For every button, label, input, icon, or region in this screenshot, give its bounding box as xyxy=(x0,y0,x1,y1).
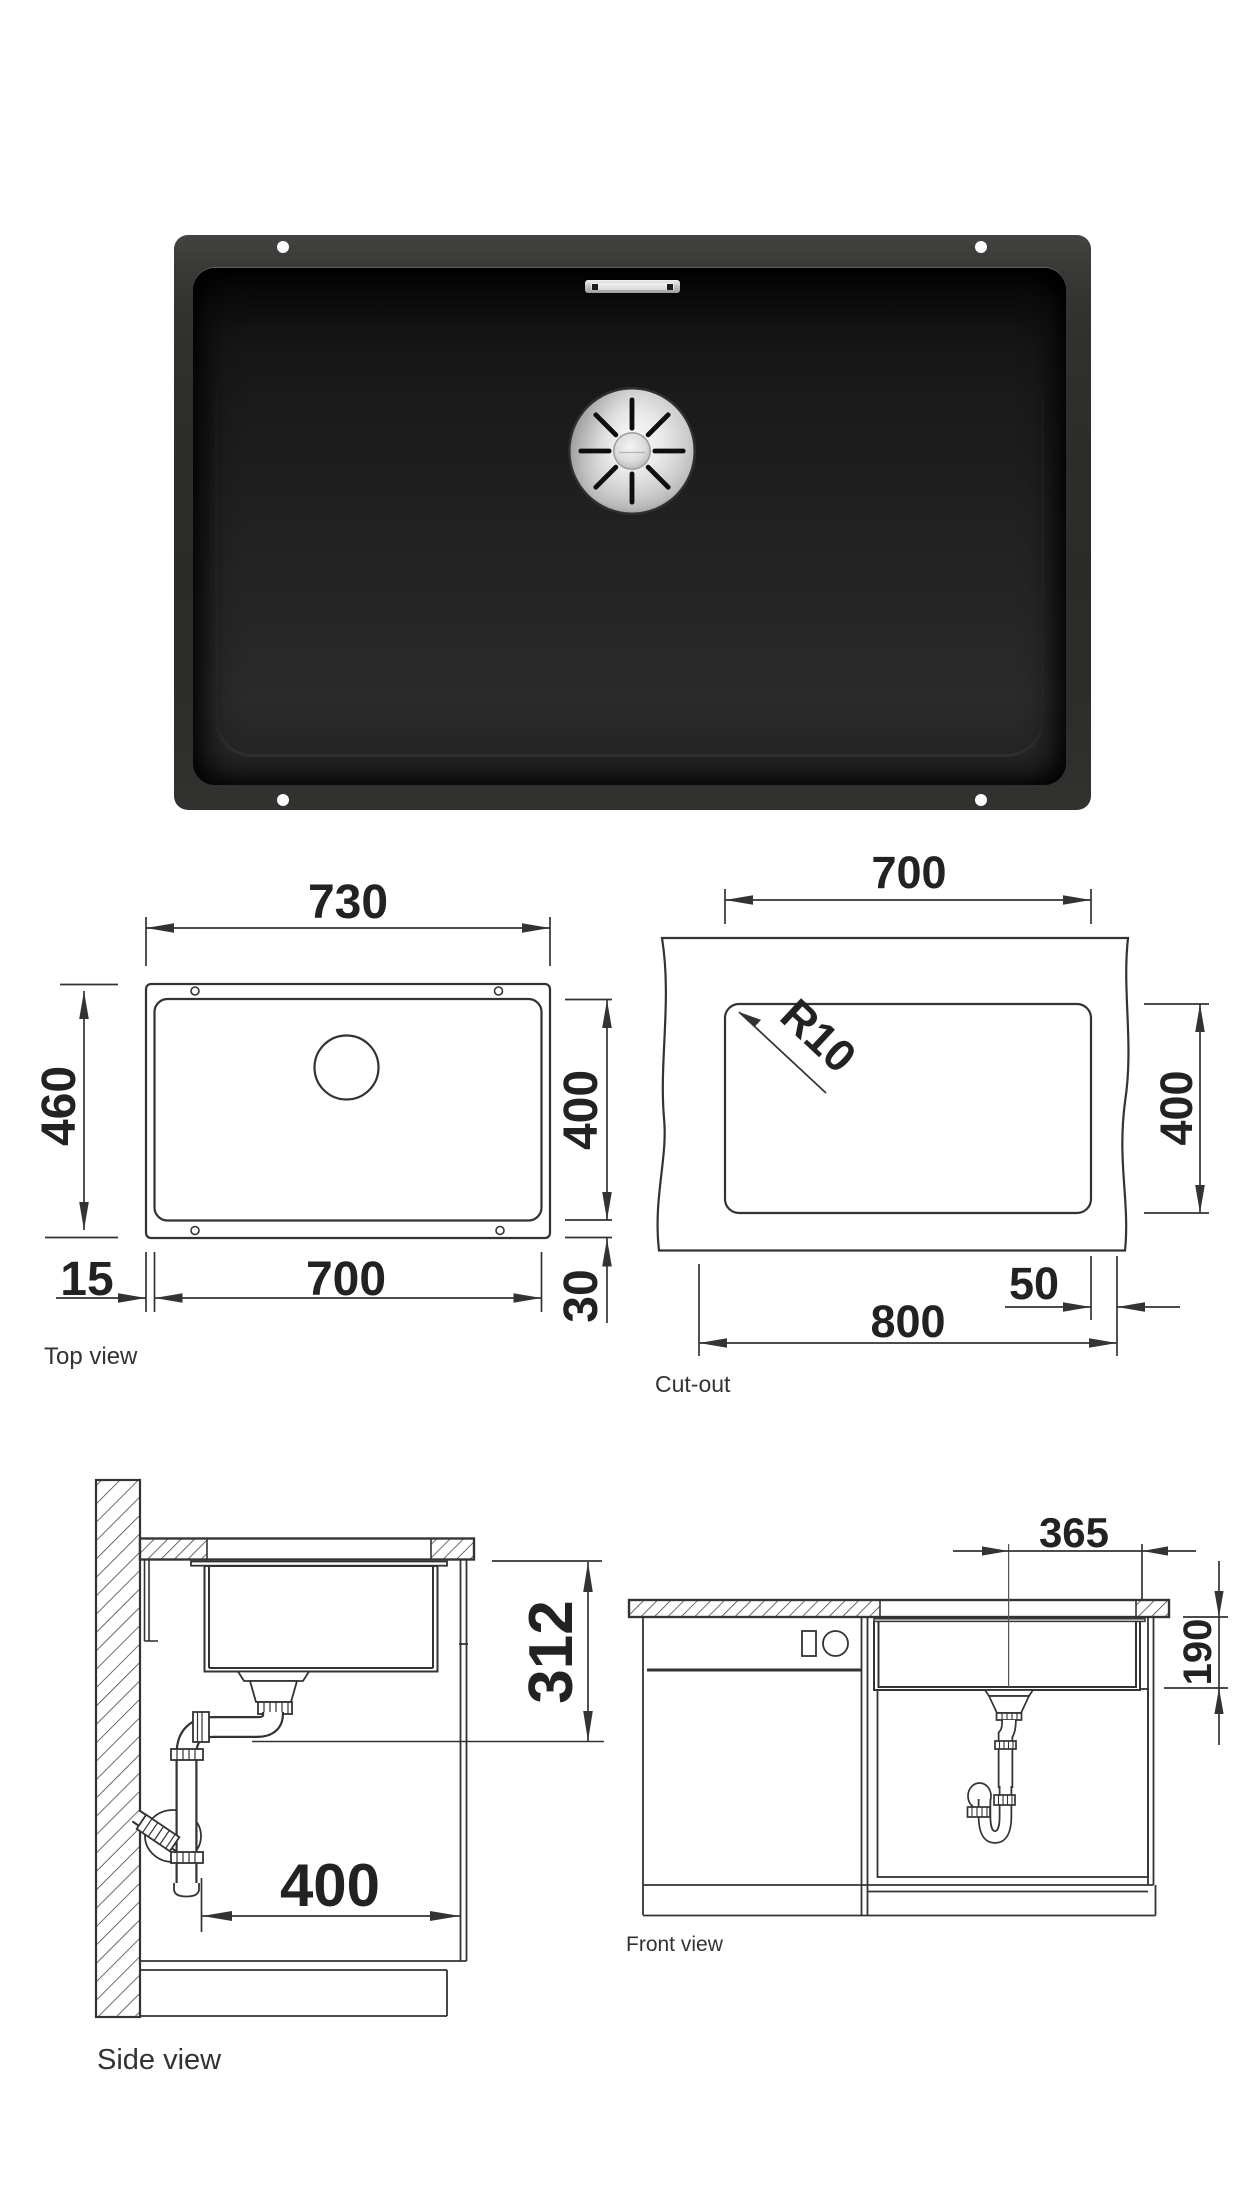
svg-text:50: 50 xyxy=(1009,1258,1059,1309)
svg-text:400: 400 xyxy=(1151,1070,1202,1145)
svg-text:700: 700 xyxy=(871,847,946,898)
svg-text:700: 700 xyxy=(306,1253,386,1306)
svg-text:730: 730 xyxy=(308,876,388,929)
svg-text:365: 365 xyxy=(1039,1509,1109,1556)
svg-text:Side view: Side view xyxy=(97,2044,222,2076)
svg-text:400: 400 xyxy=(555,1070,608,1150)
svg-text:800: 800 xyxy=(870,1296,945,1347)
svg-text:Cut-out: Cut-out xyxy=(655,1371,731,1397)
svg-text:15: 15 xyxy=(60,1253,113,1306)
svg-text:30: 30 xyxy=(555,1269,608,1322)
svg-text:460: 460 xyxy=(33,1066,86,1146)
svg-text:Top view: Top view xyxy=(44,1343,138,1370)
svg-text:312: 312 xyxy=(517,1600,586,1703)
svg-text:190: 190 xyxy=(1176,1619,1220,1686)
svg-text:Front view: Front view xyxy=(626,1933,724,1956)
svg-text:400: 400 xyxy=(280,1852,380,1919)
